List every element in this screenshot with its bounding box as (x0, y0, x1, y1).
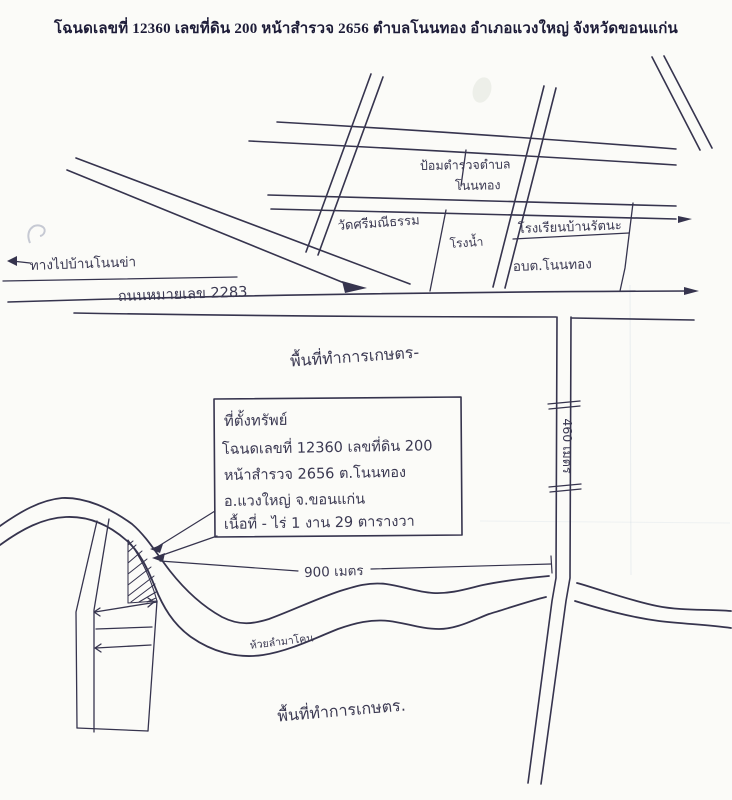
highway-upper-line (8, 291, 688, 302)
way-to-underline (3, 277, 237, 281)
horizontal-road-2-line1 (268, 195, 676, 206)
parcel-bottom-edge (77, 728, 148, 731)
subdivision-line-2 (96, 627, 152, 629)
leader-line-1 (154, 511, 215, 549)
info-box-line-4: อ.แวงใหญ่ จ.ขอนแก่น (224, 490, 366, 510)
highway-lower-line-left (74, 313, 556, 317)
street-grid (67, 56, 712, 293)
scan-artifacts (28, 75, 730, 575)
dim-tick-lower (549, 484, 581, 492)
water-plant-block-edge (430, 210, 446, 291)
scanned-deed-sketch-map: โฉนดเลขที่ 12360 เลขที่ดิน 200 หน้าสำรวจ… (0, 0, 732, 800)
subdivision-line-3 (96, 645, 151, 648)
map-canvas: โฉนดเลขที่ 12360 เลขที่ดิน 200 หน้าสำรวจ… (0, 0, 732, 800)
strip-parcel-right-edge (94, 519, 109, 732)
ink-smudge (469, 75, 494, 105)
road-end-arrowhead (678, 216, 692, 223)
dim-900-right-segment (371, 564, 551, 569)
label-dist-460m: 460 เมตร (560, 418, 575, 473)
cross-street-3-line1 (652, 57, 700, 150)
label-dist-900m: 900 เมตร (304, 563, 364, 581)
label-agri-area-upper: พื้นที่ทำการเกษตร- (289, 341, 419, 371)
dim-900-right-tick (551, 556, 552, 573)
info-box-line-3: หน้าสำรวจ 2656 ต.โนนทอง (224, 463, 406, 484)
label-road-2283: ถนนหมายเลข 2283 (118, 284, 248, 305)
highway-arrowhead (684, 287, 699, 295)
hatch-strokes (128, 541, 156, 602)
label-stream: ห้วยลำมาโคน (249, 631, 314, 652)
label-agri-area-lower: พื้นที่ทำการเกษตร. (276, 693, 406, 725)
highway-lower-line-right (572, 318, 694, 320)
cross-street-3-line2 (664, 56, 712, 148)
junction-arrowhead (342, 281, 367, 293)
paper-crease-horizontal (480, 521, 730, 523)
dim-tick-upper (548, 401, 580, 409)
label-water-plant: โรงน้ำ (449, 233, 484, 251)
info-box-line-5: เนื้อที่ - ไร่ 1 งาน 29 ตารางวา (224, 510, 415, 533)
side-road-line1 (528, 317, 557, 783)
label-temple: วัดศรีมณีธรรม (337, 212, 420, 234)
label-police-box-line1: ป้อมตำรวจตำบล (420, 156, 511, 173)
info-box-line-1: ที่ตั้งทรัพย์ (224, 409, 288, 430)
parcel-group (76, 519, 157, 732)
cross-street-2-line1 (493, 86, 544, 287)
label-way-to-ban-non-kha: ทางไปบ้านโนนข่า (30, 253, 137, 274)
info-box-line-2: โฉนดเลขที่ 12360 เลขที่ดิน 200 (222, 435, 433, 458)
dim-900-left-segment (160, 561, 298, 571)
school-block-right-edge (620, 203, 633, 291)
page-title: โฉนดเลขที่ 12360 เลขที่ดิน 200 หน้าสำรวจ… (53, 17, 679, 37)
pencil-scribble (28, 225, 44, 243)
side-road-460 (528, 317, 581, 784)
label-sao-nonthong: อบต.โนนทอง (513, 255, 593, 275)
paper-crease-vertical (630, 285, 631, 575)
left-arrowhead (7, 256, 17, 266)
info-box-group: ที่ตั้งทรัพย์ โฉนดเลขที่ 12360 เลขที่ดิน… (150, 397, 462, 562)
leader-line-2 (157, 536, 217, 557)
stream-upper-bank-right (577, 583, 731, 611)
label-police-box-line2: โนนทอง (455, 177, 501, 193)
main-parcel-right-edge (148, 601, 157, 731)
